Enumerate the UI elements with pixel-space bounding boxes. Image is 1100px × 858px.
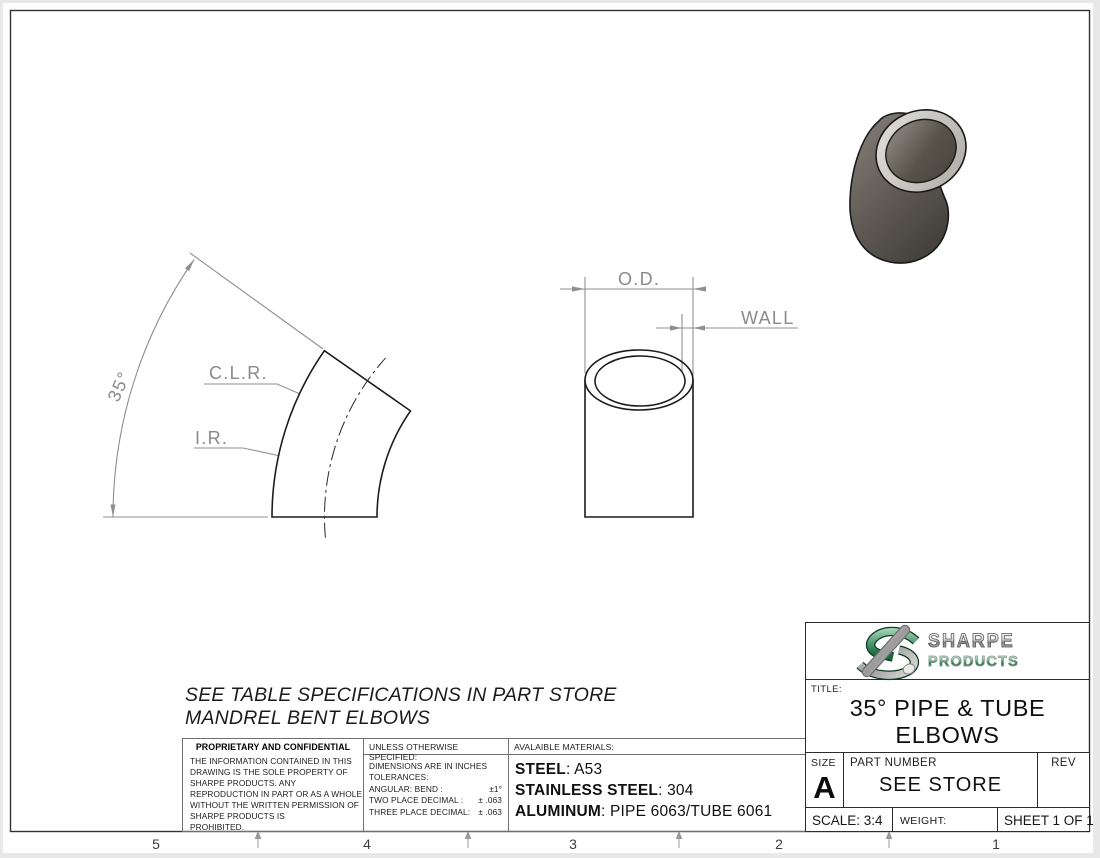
material-label: STEEL: [515, 761, 566, 778]
weight-cell: WEIGHT:: [892, 807, 998, 832]
title-cell: TITLE: 35° PIPE & TUBE ELBOWS: [805, 679, 1090, 753]
proprietary-line: WITHOUT THE WRITTEN PERMISSION OF: [190, 800, 363, 811]
tolerance-row: TWO PLACE DECIMAL : ± .063: [369, 795, 502, 806]
tolerances-line: DIMENSIONS ARE IN INCHES: [369, 761, 502, 772]
weight-text: WEIGHT:: [900, 815, 947, 827]
wall-label: WALL: [741, 308, 795, 329]
material-item: ALUMINUM: PIPE 6063/TUBE 6061: [515, 801, 805, 822]
drawing-title: 35° PIPE & TUBE ELBOWS: [806, 695, 1089, 749]
logo-cell: SHARPE PRODUCTS: [805, 622, 1090, 680]
rev-cell: REV: [1037, 752, 1090, 808]
tolerance-value: ±1°: [489, 784, 502, 795]
part-number-label: PART NUMBER: [850, 757, 937, 769]
size-value: A: [806, 770, 843, 806]
zone-number-3: 3: [558, 836, 588, 852]
proprietary-heading: PROPRIETARY AND CONFIDENTIAL: [183, 739, 363, 752]
zone-number-1: 1: [981, 836, 1011, 852]
logo-text-products: PRODUCTS: [928, 654, 1019, 670]
drawing-title-line1: 35° PIPE & TUBE: [806, 695, 1089, 722]
material-value: : 304: [658, 782, 693, 799]
proprietary-line: THE INFORMATION CONTAINED IN THIS: [190, 756, 363, 767]
size-cell: SIZE A: [805, 752, 844, 808]
materials-heading: AVALAIBLE MATERIALS:: [509, 739, 805, 755]
drawing-sheet: 35° C.L.R. I.R. O.D. WALL SEE TABLE SPEC…: [0, 0, 1100, 858]
proprietary-line: PROHIBITED.: [190, 822, 363, 833]
material-label: ALUMINUM: [515, 803, 601, 820]
tolerance-row: ANGULAR: BEND : ±1°: [369, 784, 502, 795]
logo-text-sharpe: SHARPE: [928, 631, 1015, 653]
spec-note-line2: MANDREL BENT ELBOWS: [185, 707, 617, 730]
tolerances-body: DIMENSIONS ARE IN INCHES TOLERANCES: ANG…: [364, 755, 508, 818]
tolerance-value: ± .063: [478, 795, 502, 806]
spec-note: SEE TABLE SPECIFICATIONS IN PART STORE M…: [185, 684, 617, 730]
ir-label: I.R.: [195, 428, 228, 449]
proprietary-line: DRAWING IS THE SOLE PROPERTY OF: [190, 767, 363, 778]
zone-number-5: 5: [141, 836, 171, 852]
size-label: SIZE: [811, 757, 836, 769]
sheet-text: SHEET 1 OF 1: [1004, 813, 1094, 828]
elbow-outline: [272, 351, 411, 517]
drawing-title-line2: ELBOWS: [806, 722, 1089, 749]
material-item: STEEL: A53: [515, 759, 805, 780]
zone-number-4: 4: [352, 836, 382, 852]
proprietary-line: SHARPE PRODUCTS IS: [190, 811, 363, 822]
page-edge-bottom: [0, 853, 1100, 858]
part-number-value: SEE STORE: [844, 774, 1037, 797]
tolerances-block: UNLESS OTHERWISE SPECIFIED: DIMENSIONS A…: [363, 738, 509, 832]
page-edge-right: [1093, 0, 1100, 858]
spec-note-line1: SEE TABLE SPECIFICATIONS IN PART STORE: [185, 684, 617, 707]
material-value: : PIPE 6063/TUBE 6061: [601, 803, 772, 820]
zone-number-2: 2: [764, 836, 794, 852]
tolerance-label: TWO PLACE DECIMAL :: [369, 795, 463, 806]
material-value: : A53: [566, 761, 602, 778]
proprietary-block: PROPRIETARY AND CONFIDENTIAL THE INFORMA…: [182, 738, 364, 832]
scale-text: SCALE: 3:4: [812, 813, 883, 828]
tolerances-line: TOLERANCES:: [369, 772, 502, 783]
title-label: TITLE:: [811, 684, 842, 695]
tolerance-row: THREE PLACE DECIMAL: ± .063: [369, 807, 502, 818]
tube-outer-rim: [585, 350, 693, 410]
proprietary-line: SHARPE PRODUCTS. ANY: [190, 778, 363, 789]
scale-cell: SCALE: 3:4: [805, 807, 893, 832]
od-label: O.D.: [618, 269, 660, 290]
page-edge-top: [0, 0, 1100, 3]
material-label: STAINLESS STEEL: [515, 782, 658, 799]
material-item: STAINLESS STEEL: 304: [515, 780, 805, 801]
elbow-arc-view: [103, 253, 411, 538]
clr-label: C.L.R.: [209, 363, 268, 384]
materials-block: AVALAIBLE MATERIALS: STEEL: A53 STAINLES…: [508, 738, 806, 832]
proprietary-body: THE INFORMATION CONTAINED IN THIS DRAWIN…: [183, 752, 363, 833]
tolerance-value: ± .063: [478, 807, 502, 818]
tolerances-heading: UNLESS OTHERWISE SPECIFIED:: [364, 739, 508, 755]
materials-list: STEEL: A53 STAINLESS STEEL: 304 ALUMINUM…: [509, 755, 805, 822]
tolerance-label: ANGULAR: BEND :: [369, 784, 443, 795]
page-edge-left: [0, 0, 3, 858]
rev-label: REV: [1038, 757, 1089, 769]
angled-extension-line: [190, 253, 323, 349]
isometric-elbow-render: [850, 95, 980, 263]
tube-inner-rim: [595, 356, 685, 406]
tolerance-label: THREE PLACE DECIMAL:: [369, 807, 470, 818]
proprietary-line: REPRODUCTION IN PART OR AS A WHOLE: [190, 789, 363, 800]
sheet-cell: SHEET 1 OF 1: [997, 807, 1090, 832]
part-number-cell: PART NUMBER SEE STORE: [843, 752, 1038, 808]
